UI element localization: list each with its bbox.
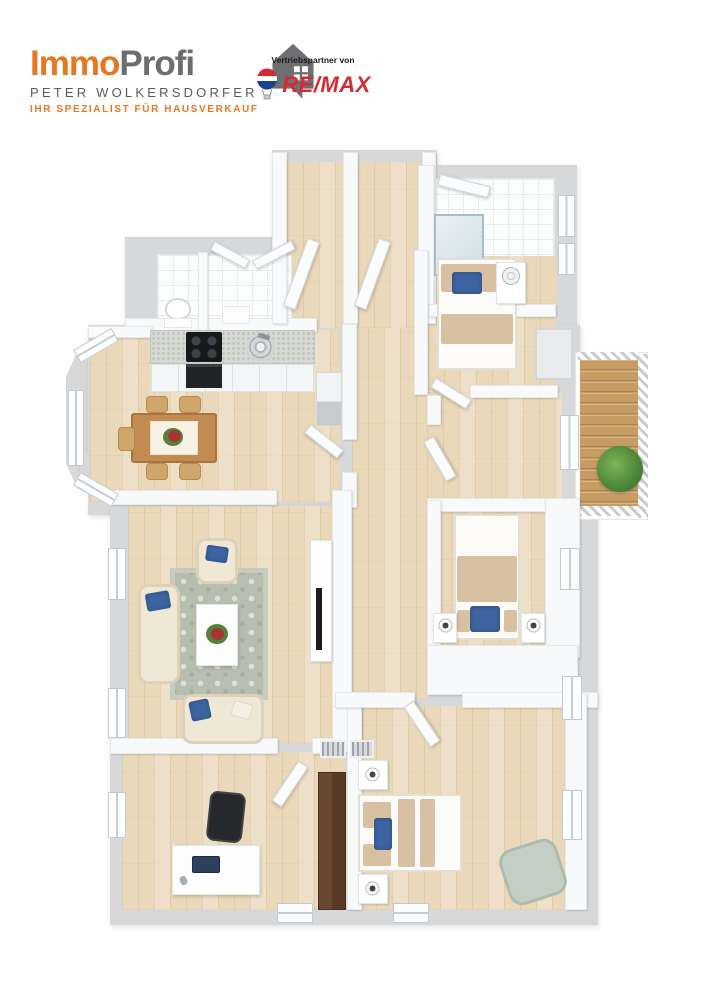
kitchen-counter — [150, 330, 315, 364]
wall-bedroom1-west — [414, 250, 428, 395]
wall-bedroom3-north-left — [335, 692, 415, 708]
kitchen-cabinets — [150, 364, 315, 392]
wall-hall-stub — [427, 395, 441, 425]
office-wardrobe — [318, 772, 346, 910]
bed2-pillow-blue — [470, 606, 500, 632]
office-laptop — [192, 856, 220, 873]
bed2-pillow-side-left — [457, 610, 470, 632]
bed2-blanket — [457, 556, 517, 602]
window-topright-2 — [558, 243, 575, 275]
balcony-railing-top — [578, 352, 638, 360]
living-sofa-bottom-pillow-blue — [188, 698, 212, 722]
bed2-lamp-right — [525, 617, 542, 634]
page: ImmoProfi PETER WOLKERSDORFER IHR SPEZIA… — [0, 0, 707, 1000]
window-right-bedroom2 — [560, 548, 580, 590]
window-bottom-1 — [277, 903, 313, 923]
floor-plan — [0, 0, 707, 1000]
bay-window-mid — [68, 390, 84, 466]
floor-hall-east — [427, 393, 562, 505]
window-left-2 — [108, 688, 126, 738]
dining-chair-left — [118, 427, 135, 451]
dining-chair-top-1 — [146, 396, 168, 413]
balcony-plant — [597, 446, 643, 492]
bed2-pillow-side-right — [504, 610, 517, 632]
balcony-door — [560, 415, 579, 470]
wall-bedroom2-north — [427, 498, 547, 512]
kitchen-cooktop — [186, 332, 222, 362]
balcony-railing-right — [638, 354, 648, 518]
wall-wc-divider — [198, 252, 208, 332]
office-chair — [205, 790, 246, 843]
living-coffee-flowers-red — [211, 628, 224, 640]
window-left-1 — [108, 548, 126, 600]
dining-flowers-red — [168, 430, 181, 442]
toilet-bowl — [165, 298, 191, 320]
wall-living-north — [110, 490, 277, 505]
living-armchair-pillow — [205, 545, 229, 564]
vent-corridor-right — [350, 740, 374, 758]
bed1-fan — [501, 266, 521, 286]
bed3-lamp-bottom — [364, 880, 381, 897]
dining-chair-bottom-2 — [179, 463, 201, 480]
bed3-pillow-blue — [374, 818, 392, 850]
bed2-lamp-left — [437, 617, 454, 634]
window-topright-1 — [558, 195, 575, 237]
kitchen-fridge — [316, 372, 342, 426]
kitchen-oven — [186, 364, 222, 388]
dining-chair-bottom-1 — [146, 463, 168, 480]
chimney-block — [535, 328, 573, 380]
wall-bedroom1-south — [470, 385, 558, 398]
window-left-3 — [108, 792, 126, 838]
bed3-lamp-top — [364, 766, 381, 783]
dining-chair-top-2 — [179, 396, 201, 413]
wall-bedroom2-south — [427, 645, 578, 695]
toilet-tank — [164, 318, 192, 328]
living-tv — [316, 588, 322, 650]
window-right-bedroom3-a — [562, 676, 582, 720]
vent-corridor-left — [320, 740, 346, 758]
bed1-pillow-blue — [452, 272, 482, 294]
bed3-blanket-1 — [398, 799, 415, 867]
bath2-washer — [222, 306, 250, 324]
bed1-blanket — [441, 314, 513, 344]
wall-kitchen-corridor-upper — [342, 324, 357, 440]
window-right-bedroom3-b — [562, 790, 582, 840]
window-bottom-2 — [393, 903, 429, 923]
bed3-blanket-2 — [420, 799, 435, 867]
balcony-railing-bottom — [578, 506, 646, 516]
